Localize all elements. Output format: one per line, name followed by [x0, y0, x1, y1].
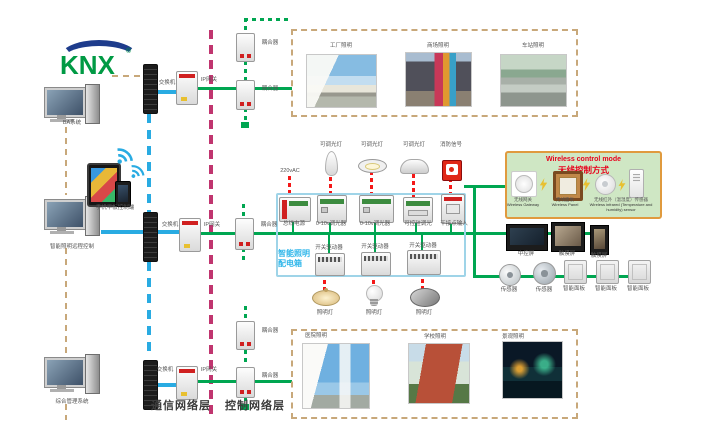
pc-link-line	[65, 404, 67, 420]
dimmable-lamp-label: 可调光灯	[399, 142, 429, 149]
tower-icon	[85, 84, 100, 124]
ip-gateway-icon	[176, 71, 198, 105]
dimmable-lamp-label: 可调光灯	[316, 142, 346, 149]
lighting-lamp-label: 照明灯	[361, 310, 387, 317]
ethernet-trunk-line	[147, 114, 151, 212]
smart-panel-label: 智能面板	[623, 286, 653, 293]
control-layer-label: 控制网络层	[224, 400, 286, 413]
station-lighting-label: 车站照明	[514, 43, 552, 50]
flush-lamp-icon	[312, 290, 340, 306]
switch-actuator-icon	[361, 252, 391, 276]
knx-logo: KNX ®	[56, 40, 140, 86]
mobile-control-label: 手机平板控制端	[82, 205, 148, 212]
smart-panel-icon	[628, 260, 651, 284]
panel-title-line2: 配电箱	[278, 259, 318, 269]
pc-link-line	[65, 127, 67, 195]
downlight-icon	[358, 159, 387, 173]
smartphone-icon	[115, 181, 131, 207]
computer-icon	[44, 354, 102, 396]
ip-gateway-icon	[179, 218, 201, 252]
ethernet-line	[157, 90, 178, 94]
dimmer-module-icon	[359, 195, 394, 223]
comm-layer-label: 通信网络层	[150, 400, 212, 413]
sensor-icon	[499, 264, 521, 286]
mall-lighting-label: 商场照明	[419, 43, 457, 50]
wireless-gateway-label-en: Wireless Gateway	[503, 203, 543, 208]
sensor-label: 传感器	[531, 287, 557, 294]
switch-label: 交换机	[158, 222, 182, 229]
dimmable-lamp-label: 可调光灯	[357, 142, 387, 149]
factory-lighting-label: 工厂照明	[322, 43, 360, 50]
sensor-label: 传感器	[496, 287, 522, 294]
ethernet-line	[157, 230, 181, 234]
ethernet-trunk-line	[147, 262, 151, 358]
landscape-photo	[502, 341, 563, 399]
lighting-lamp-label: 照明灯	[312, 310, 338, 317]
coupler-bus-line	[244, 108, 247, 122]
touch-screen-label: 触摸屏	[584, 253, 614, 260]
ba-system-label: BA系统	[40, 120, 104, 127]
coupler-bus-line	[244, 61, 247, 80]
coupler-label: 耦合器	[256, 40, 284, 47]
coupler-icon	[236, 33, 255, 62]
pc-link-line	[65, 248, 67, 354]
diagram-canvas: Wireless control mode 无线控制方式 KNX ®	[0, 0, 715, 443]
school-lighting-label: 学校照明	[416, 334, 454, 341]
landscape-lighting-label: 景观照明	[494, 334, 532, 341]
remote-control-label: 智能照明远程控制	[28, 244, 116, 251]
ip-gateway-label: IP网关	[199, 222, 225, 229]
coupler-icon	[236, 367, 255, 398]
wireless-panel-label-en: Wireless Panel	[545, 203, 585, 208]
ip-gateway-label: IP网关	[196, 77, 222, 84]
dimmer-module-icon	[317, 195, 347, 223]
switch-label: 交换机	[153, 367, 177, 374]
tower-icon	[85, 354, 100, 394]
wireless-link-line	[464, 185, 506, 188]
fire-signal-label: 消防信号	[436, 142, 466, 149]
registered-mark: ®	[126, 48, 131, 55]
touch-screen-icon	[590, 225, 609, 255]
coupler-bus-line	[242, 248, 245, 262]
management-system-label: 综合管理系统	[34, 399, 110, 406]
smart-panel-label: 智能面板	[591, 286, 621, 293]
coupler-label: 耦合器	[256, 328, 284, 335]
ethernet-line	[157, 383, 178, 387]
panel-title-line1: 智能照明	[278, 249, 318, 259]
station-photo	[500, 54, 567, 107]
knx-logo-text: KNX	[60, 50, 115, 81]
bulb-base-icon	[370, 299, 378, 306]
coupler-icon	[236, 80, 255, 110]
monitor-icon	[44, 199, 86, 230]
dimmer-label: 0-10v调光器	[309, 221, 353, 228]
lightning-icon	[617, 179, 627, 191]
switch-actuator-icon	[315, 253, 345, 276]
temperature-humidity-sensor-icon	[629, 169, 644, 198]
bus-power-module-icon	[279, 197, 311, 222]
touch-screen-icon	[551, 222, 585, 252]
smart-panel-label: 智能面板	[559, 286, 589, 293]
network-switch-icon	[143, 212, 158, 262]
hospital-lighting-label: 医院照明	[297, 333, 335, 340]
wireless-title-en: Wireless control mode	[507, 156, 660, 163]
hospital-photo	[302, 343, 370, 409]
ip-gateway-label: IP网关	[196, 367, 222, 374]
lighting-lamp-label: 照明灯	[411, 310, 437, 317]
dimmer-label: 0-10v调光器	[353, 221, 397, 228]
sensor-icon	[533, 262, 556, 285]
switch-actuator-label: 开关驱动器	[404, 243, 442, 250]
coupler-label: 耦合器	[256, 86, 284, 93]
scr-dimmer-module-icon	[403, 197, 433, 223]
coupler-bus-line	[244, 18, 292, 21]
monitor-icon	[44, 357, 86, 388]
dry-contact-label: 干接点输入	[435, 221, 473, 228]
wireless-sensor-label-en: Wireless infrared (Temperature and humid…	[585, 203, 657, 213]
coupler-icon	[236, 321, 255, 350]
scr-dimmer-label: 可控硅调光	[397, 221, 439, 228]
lightning-icon	[538, 178, 549, 191]
fire-alarm-icon	[442, 160, 462, 181]
smart-panel-icon	[564, 260, 587, 284]
coupler-bus-line	[244, 306, 247, 321]
dry-contact-module-icon	[441, 194, 465, 224]
coupler-label: 耦合器	[256, 373, 284, 380]
ip-gateway-icon	[176, 366, 198, 400]
touch-screen-label: 触摸屏	[547, 251, 587, 258]
smart-panel-icon	[596, 260, 619, 284]
bus-end-cap	[241, 122, 249, 128]
coupler-bus-line	[242, 204, 245, 218]
mains-label: 220vAC	[274, 168, 306, 175]
lightning-icon	[581, 178, 592, 191]
switch-label: 交换机	[155, 80, 179, 87]
wireless-infrared-sensor-icon	[595, 174, 616, 195]
wireless-gateway-icon	[511, 171, 537, 197]
ceiling-lamp-icon	[400, 159, 429, 174]
dish-lamp-icon	[410, 288, 440, 307]
school-photo	[408, 343, 470, 404]
switch-actuator-label: 开关驱动器	[356, 244, 394, 251]
factory-photo	[306, 54, 377, 108]
monitor-icon	[44, 87, 86, 118]
bus-trunk-line	[473, 185, 476, 278]
mall-photo	[405, 52, 472, 107]
central-screen-label: 中控屏	[506, 251, 546, 258]
ethernet-line	[101, 230, 146, 234]
network-switch-icon	[143, 64, 158, 114]
candle-bulb-icon	[325, 151, 338, 176]
switch-actuator-icon	[407, 250, 441, 275]
central-screen-icon	[506, 224, 548, 251]
coupler-icon	[235, 218, 254, 250]
